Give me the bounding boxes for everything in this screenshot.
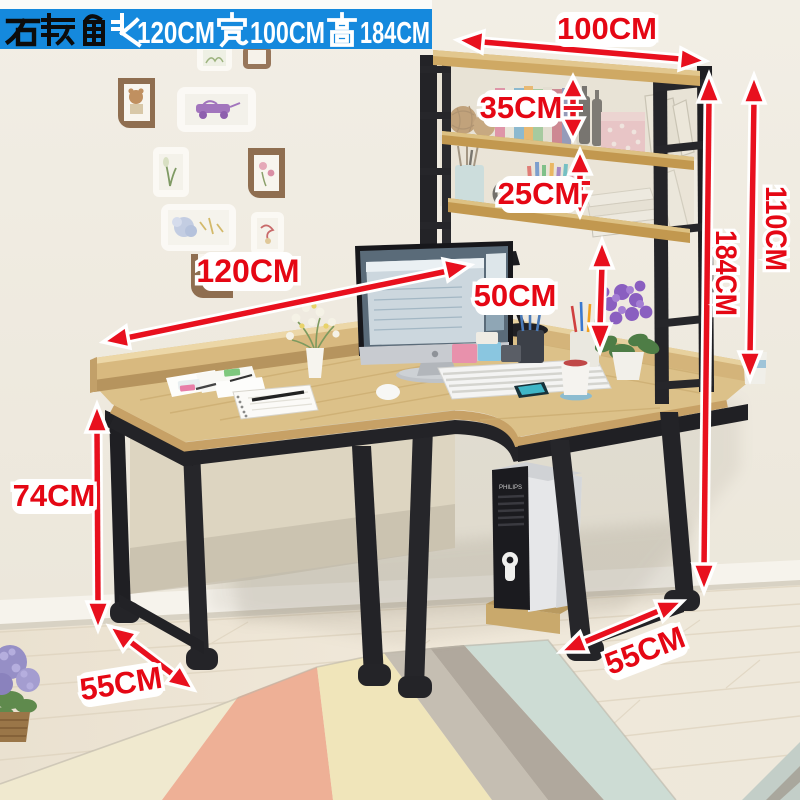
svg-text:PHILIPS: PHILIPS [499, 485, 522, 491]
svg-text:110CM: 110CM [759, 186, 792, 271]
svg-text:74CM: 74CM [13, 478, 96, 513]
svg-text:50CM: 50CM [474, 278, 557, 313]
svg-text:25CM: 25CM [498, 176, 581, 211]
svg-text:120CM: 120CM [196, 253, 299, 289]
svg-text:120CM: 120CM [137, 15, 215, 50]
svg-text:100CM: 100CM [557, 11, 657, 46]
svg-text:100CM: 100CM [250, 15, 325, 50]
svg-text:184CM: 184CM [709, 230, 742, 316]
svg-text:35CM: 35CM [480, 90, 563, 125]
svg-text:184CM: 184CM [360, 15, 430, 50]
